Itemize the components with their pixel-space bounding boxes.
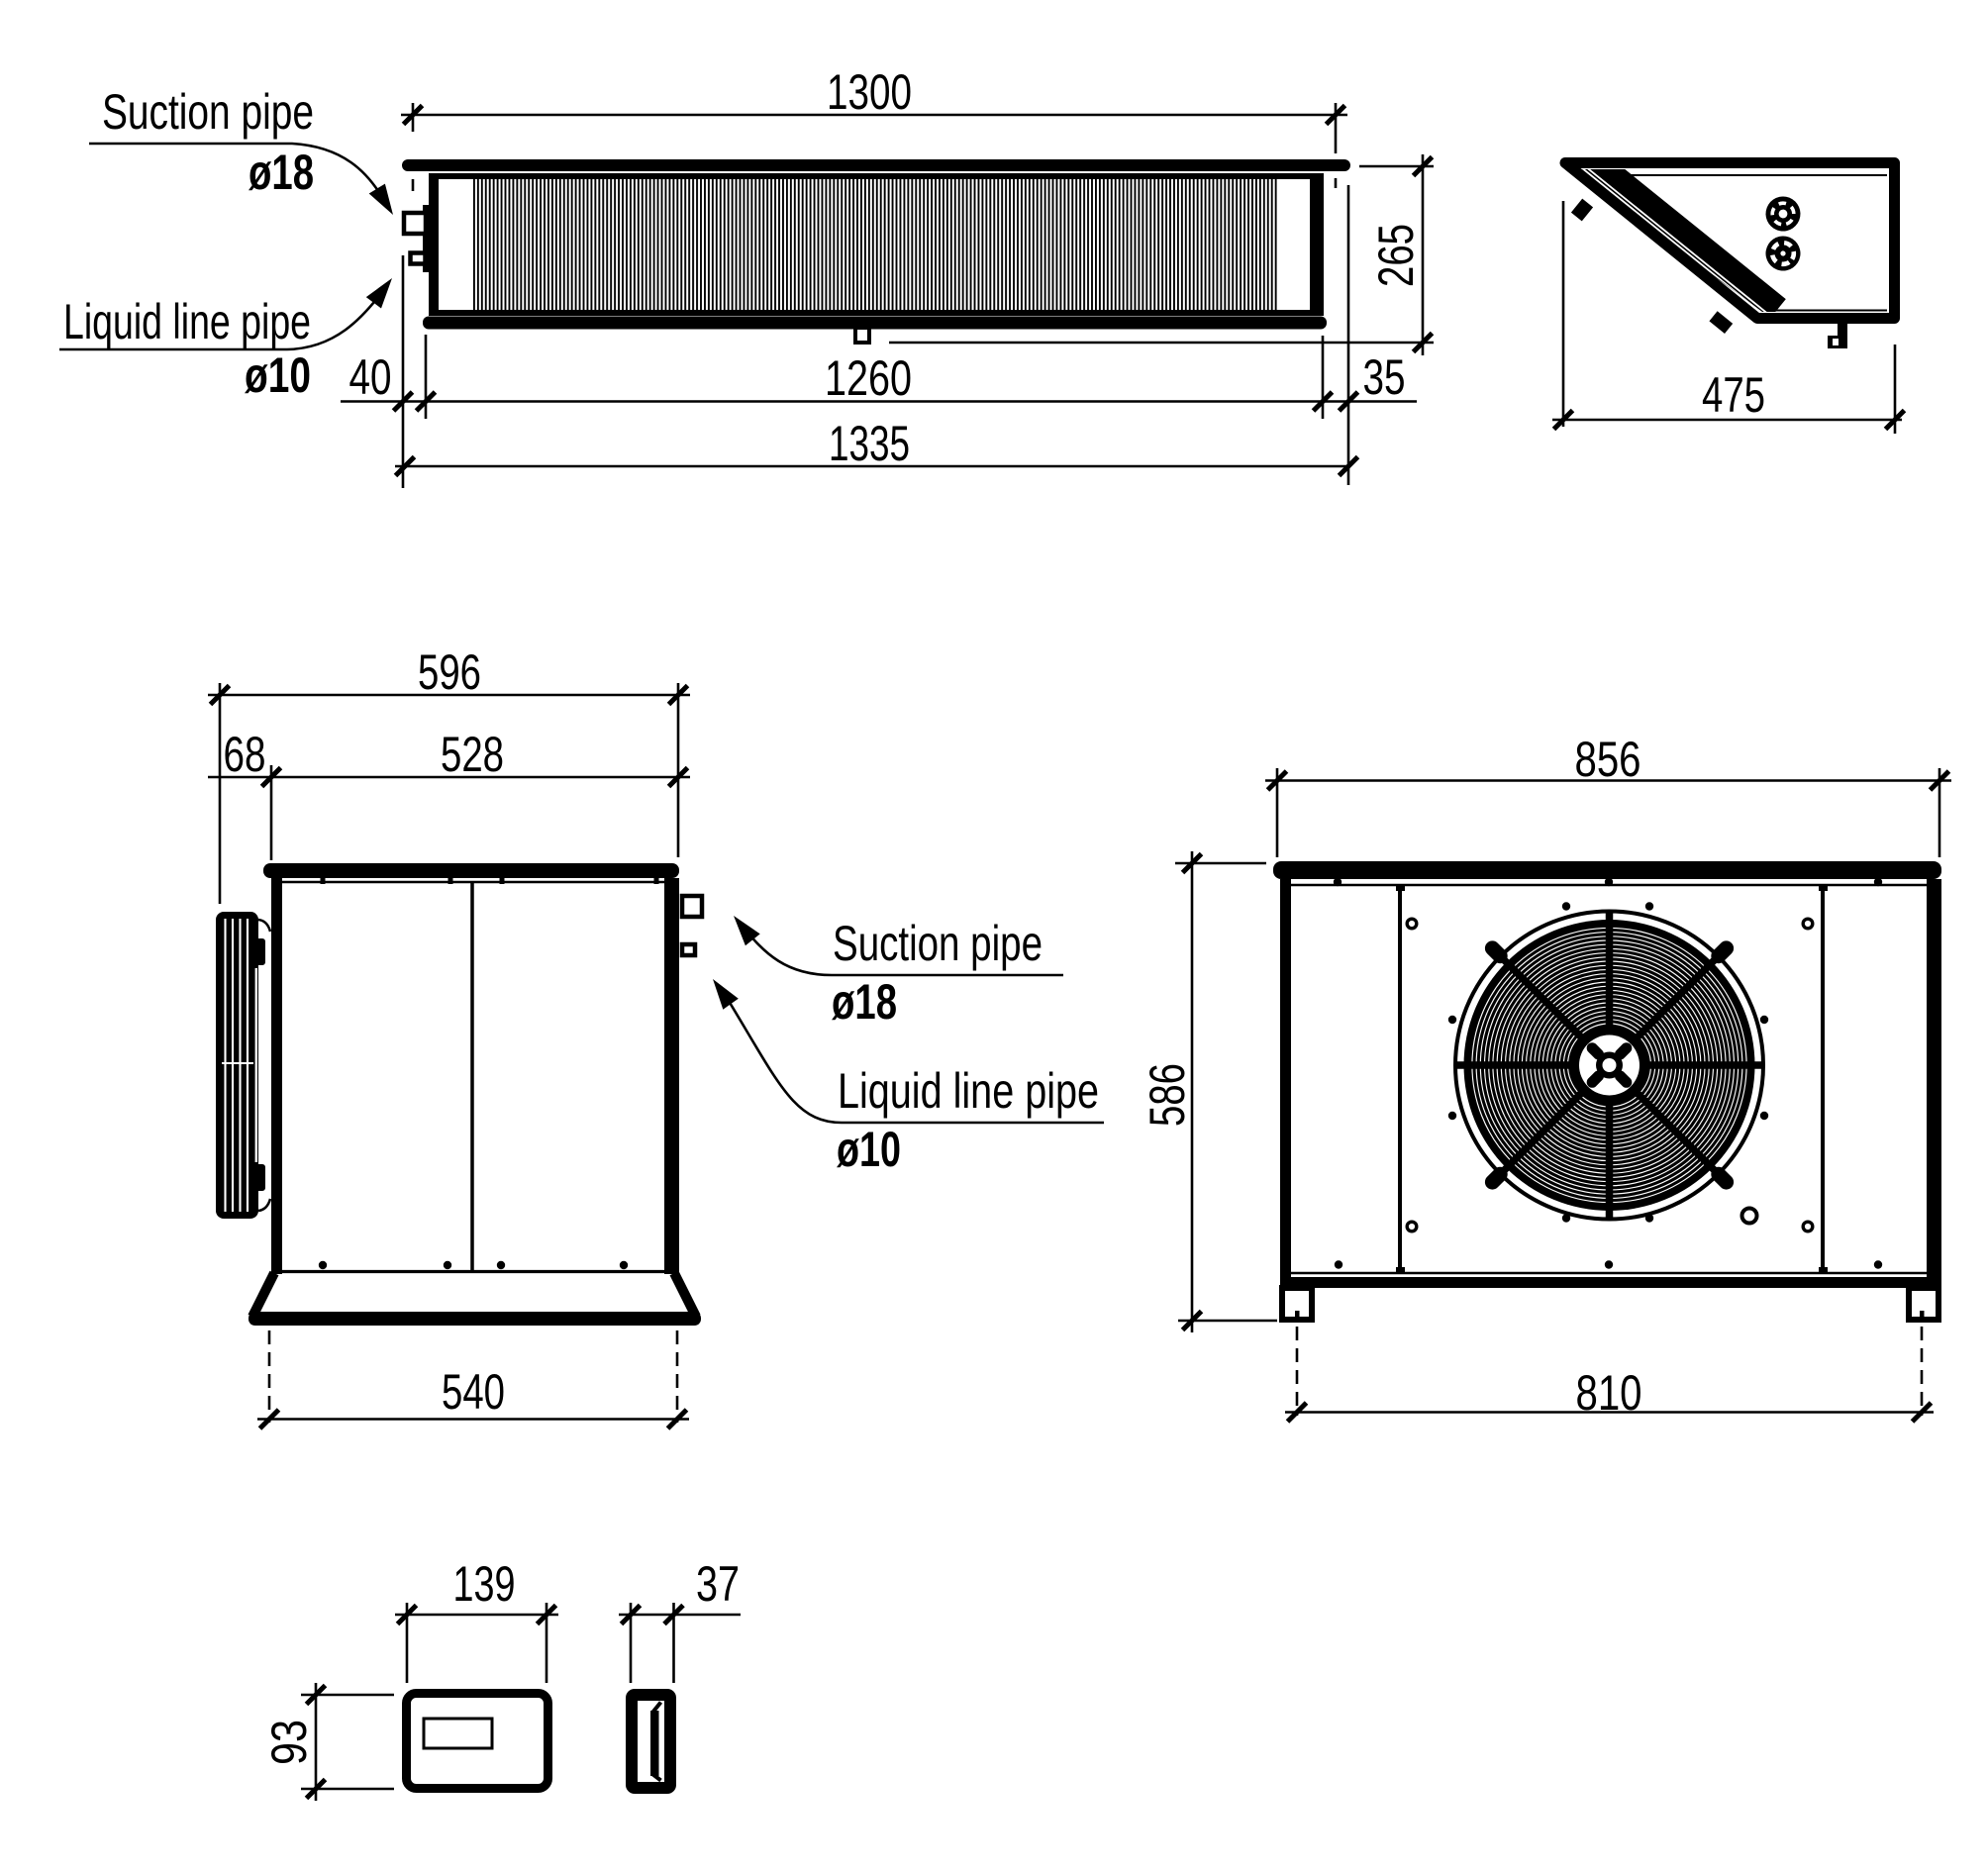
svg-text:ø18: ø18 xyxy=(248,145,314,200)
svg-text:37: 37 xyxy=(696,1556,740,1612)
svg-text:ø10: ø10 xyxy=(837,1122,901,1177)
svg-text:596: 596 xyxy=(418,644,481,700)
svg-text:35: 35 xyxy=(1363,349,1406,405)
svg-text:40: 40 xyxy=(349,349,392,405)
svg-text:93: 93 xyxy=(261,1720,317,1765)
svg-text:Suction pipe: Suction pipe xyxy=(102,84,314,140)
svg-text:68: 68 xyxy=(224,727,266,782)
svg-text:1260: 1260 xyxy=(825,350,912,406)
svg-text:475: 475 xyxy=(1702,367,1765,423)
svg-text:Liquid line pipe: Liquid line pipe xyxy=(838,1063,1099,1119)
svg-text:Liquid line pipe: Liquid line pipe xyxy=(63,294,311,349)
svg-text:Suction pipe: Suction pipe xyxy=(833,916,1043,971)
svg-text:586: 586 xyxy=(1140,1063,1195,1127)
svg-text:540: 540 xyxy=(442,1364,505,1420)
svg-text:1335: 1335 xyxy=(829,416,910,471)
svg-text:856: 856 xyxy=(1575,732,1641,787)
svg-text:265: 265 xyxy=(1368,224,1424,287)
svg-text:139: 139 xyxy=(453,1556,516,1612)
svg-text:1300: 1300 xyxy=(827,64,912,120)
svg-text:528: 528 xyxy=(441,727,504,782)
svg-text:810: 810 xyxy=(1576,1365,1642,1421)
svg-text:ø18: ø18 xyxy=(832,974,897,1030)
svg-text:ø10: ø10 xyxy=(245,347,311,403)
